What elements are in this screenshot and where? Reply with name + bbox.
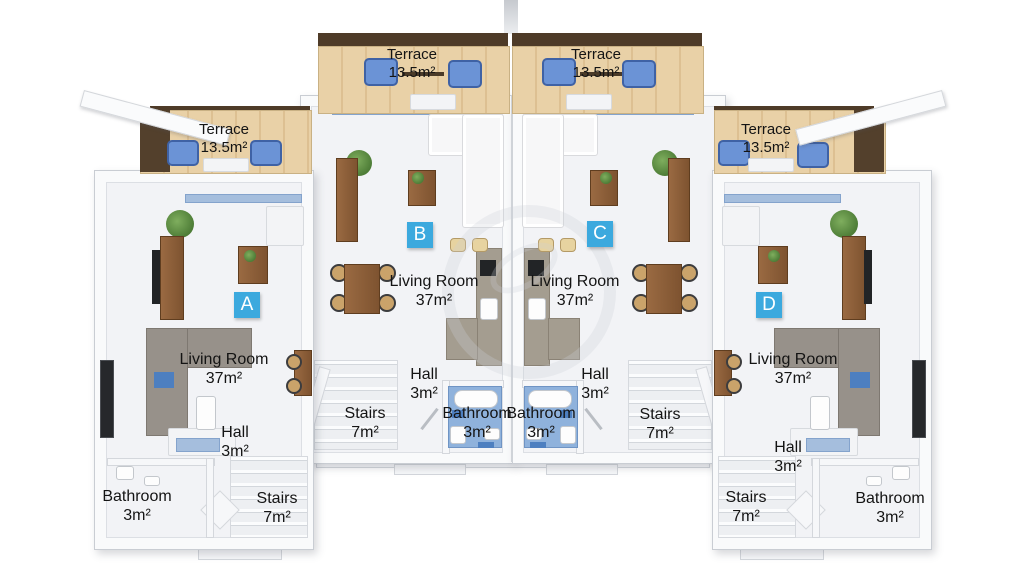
room-name: Terrace xyxy=(199,121,249,139)
terrace-rail xyxy=(318,33,508,46)
room-name: Living Room xyxy=(180,351,269,370)
bath-mat xyxy=(478,442,494,448)
unit-c-hall-label: Hall 3m² xyxy=(581,366,609,404)
room-name: Stairs xyxy=(257,490,298,509)
terrace-armchair xyxy=(622,60,656,88)
terrace-rail xyxy=(512,33,702,46)
terrace-bench xyxy=(748,158,794,172)
room-name: Hall xyxy=(410,366,438,385)
room-area: 37m² xyxy=(749,370,838,389)
dining-chair xyxy=(286,354,302,370)
terrace-armchair xyxy=(797,142,829,168)
room-name: Bathroom xyxy=(102,488,171,507)
kitchen-sink xyxy=(850,372,870,388)
room-name: Living Room xyxy=(390,273,479,292)
room-area: 37m² xyxy=(180,370,269,389)
bathroom-wall xyxy=(206,458,214,538)
unit-a-terrace-label: Terrace 13.5m² xyxy=(199,121,249,156)
terrace-bench xyxy=(203,158,249,172)
cabinet xyxy=(722,206,760,246)
terrace-armchair xyxy=(448,60,482,88)
room-name: Terrace xyxy=(571,46,621,64)
room-name: Bathroom xyxy=(855,490,924,509)
terrace-armchair xyxy=(250,140,282,166)
dining-chair xyxy=(726,378,742,394)
room-area: 37m² xyxy=(390,292,479,311)
table-plant xyxy=(768,250,780,262)
bath-mat xyxy=(530,442,546,448)
unit-a-badge: A xyxy=(234,292,260,318)
floorplan-canvas: A B C D Terrace 13.5m² Terrace 13.5m² Te… xyxy=(0,0,1024,567)
sideboard xyxy=(668,158,690,242)
room-name: Hall xyxy=(581,366,609,385)
room-area: 7m² xyxy=(345,424,386,443)
unit-b-badge: B xyxy=(407,222,433,248)
unit-c-stairs-label: Stairs 7m² xyxy=(640,406,681,444)
unit-d-terrace-label: Terrace 13.5m² xyxy=(741,121,791,156)
unit-a-bathroom-label: Bathroom 3m² xyxy=(102,488,171,526)
unit-c-badge: C xyxy=(587,221,613,247)
room-area: 3m² xyxy=(221,443,249,462)
tv-sideboard xyxy=(842,236,866,320)
unit-b-bathroom-label: Bathroom 3m² xyxy=(442,405,511,443)
table-plant xyxy=(600,172,612,184)
door xyxy=(810,396,830,430)
table-plant xyxy=(412,172,424,184)
room-area: 3m² xyxy=(102,507,171,526)
unit-d-bathroom-label: Bathroom 3m² xyxy=(855,490,924,528)
glass-rail xyxy=(176,438,220,452)
unit-d-hall-label: Hall 3m² xyxy=(774,439,802,477)
toilet xyxy=(116,466,134,480)
dining-chair xyxy=(726,354,742,370)
glass-rail xyxy=(806,438,850,452)
cabinet xyxy=(266,206,304,246)
unit-a-living-room-label: Living Room 37m² xyxy=(180,351,269,389)
unit-c-bathroom-label: Bathroom 3m² xyxy=(506,405,575,443)
room-area: 3m² xyxy=(410,385,438,404)
tv xyxy=(152,250,160,304)
dining-chair xyxy=(286,378,302,394)
unit-d-stairs-label: Stairs 7m² xyxy=(726,489,767,527)
room-area: 3m² xyxy=(855,509,924,528)
tv xyxy=(864,250,872,304)
room-name: Stairs xyxy=(726,489,767,508)
bathroom-wall xyxy=(812,458,820,538)
washbasin xyxy=(144,476,160,486)
plant xyxy=(166,210,194,238)
room-name: Living Room xyxy=(749,351,838,370)
room-name: Terrace xyxy=(741,121,791,139)
window xyxy=(100,360,114,438)
terrace-bench xyxy=(410,94,456,110)
room-area: 13.5m² xyxy=(741,139,791,157)
room-name: Bathroom xyxy=(442,405,511,424)
sideboard xyxy=(336,158,358,242)
unit-c-living-room-label: Living Room 37m² xyxy=(531,273,620,311)
room-area: 7m² xyxy=(726,508,767,527)
unit-d-badge: D xyxy=(756,292,782,318)
room-area: 3m² xyxy=(442,424,511,443)
dining-chair xyxy=(680,294,698,312)
bathroom-wall xyxy=(811,458,919,466)
room-area: 7m² xyxy=(640,425,681,444)
dining-table xyxy=(344,264,380,314)
room-area: 37m² xyxy=(531,292,620,311)
unit-a-stairs-label: Stairs 7m² xyxy=(257,490,298,528)
toilet xyxy=(892,466,910,480)
unit-b-terrace-label: Terrace 13.5m² xyxy=(387,46,437,81)
unit-b-living-room-label: Living Room 37m² xyxy=(390,273,479,311)
entry-step xyxy=(546,464,618,475)
room-area: 3m² xyxy=(506,424,575,443)
terrace-bench xyxy=(566,94,612,110)
party-wall-divider xyxy=(504,0,518,34)
kitchen-sink xyxy=(154,372,174,388)
plant xyxy=(830,210,858,238)
room-area: 13.5m² xyxy=(571,64,621,82)
room-area: 13.5m² xyxy=(199,139,249,157)
door xyxy=(196,396,216,430)
unit-b-stairs-label: Stairs 7m² xyxy=(345,405,386,443)
room-name: Hall xyxy=(221,424,249,443)
unit-c-terrace-label: Terrace 13.5m² xyxy=(571,46,621,81)
dining-table xyxy=(646,264,682,314)
room-area: 13.5m² xyxy=(387,64,437,82)
room-name: Stairs xyxy=(345,405,386,424)
room-area: 3m² xyxy=(774,458,802,477)
dining-chair xyxy=(680,264,698,282)
room-area: 3m² xyxy=(581,385,609,404)
room-name: Bathroom xyxy=(506,405,575,424)
window xyxy=(912,360,926,438)
unit-b-hall-label: Hall 3m² xyxy=(410,366,438,404)
room-name: Living Room xyxy=(531,273,620,292)
bathroom-wall xyxy=(107,458,215,466)
terrace-armchair xyxy=(167,140,199,166)
unit-d-terrace-door xyxy=(724,194,841,203)
entry-step xyxy=(394,464,466,475)
unit-a-terrace-door xyxy=(185,194,302,203)
room-name: Hall xyxy=(774,439,802,458)
room-name: Terrace xyxy=(387,46,437,64)
room-name: Stairs xyxy=(640,406,681,425)
tv-sideboard xyxy=(160,236,184,320)
table-plant xyxy=(244,250,256,262)
unit-d-living-room-label: Living Room 37m² xyxy=(749,351,838,389)
washbasin xyxy=(866,476,882,486)
unit-a-hall-label: Hall 3m² xyxy=(221,424,249,462)
room-area: 7m² xyxy=(257,509,298,528)
